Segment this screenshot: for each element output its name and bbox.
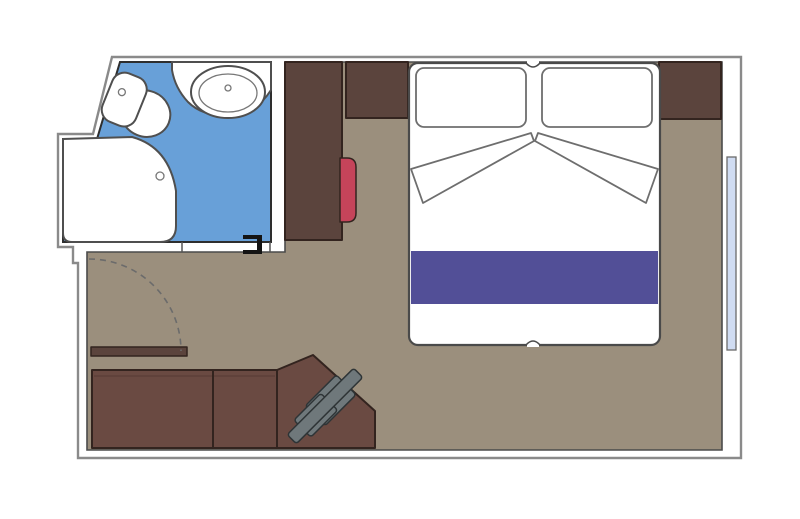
entry-door-leaf: [91, 347, 187, 356]
bed-runner: [411, 251, 658, 304]
window: [727, 157, 736, 350]
stool: [340, 158, 356, 222]
shower-tray: [63, 137, 176, 242]
pillow-right: [542, 68, 652, 127]
desk-cabinet-left: [92, 370, 213, 448]
floor-plan-svg: [0, 0, 800, 519]
nightstand-right: [659, 62, 721, 119]
nightstand-left: [346, 62, 408, 118]
pillow-left: [416, 68, 526, 127]
wardrobe: [285, 62, 342, 240]
cabin-floor-plan: [0, 0, 800, 519]
mattress-notch-bottom-mask: [527, 343, 539, 347]
desk-cabinet-middle: [213, 370, 277, 448]
mattress-notch-top-mask: [527, 61, 539, 65]
